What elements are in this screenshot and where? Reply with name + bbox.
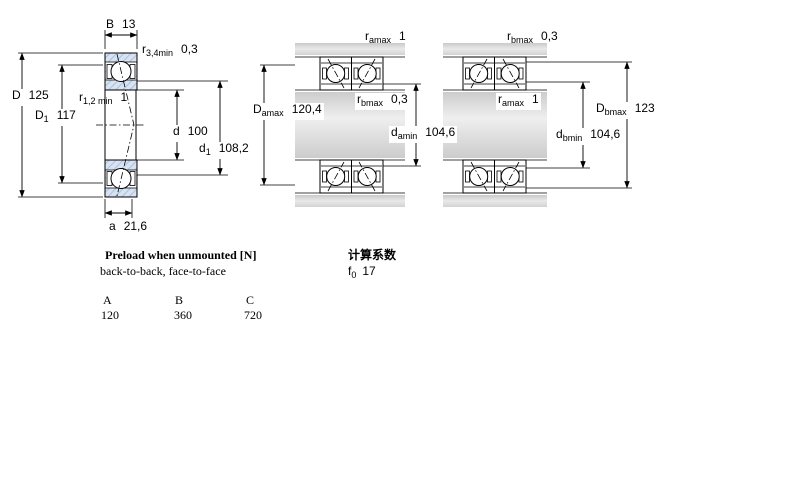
preload-column-C: C xyxy=(246,293,254,307)
dim-label-a: a21,6 xyxy=(109,220,147,237)
dim-label-ramax-f2f: ramax1 xyxy=(496,93,541,110)
dim-label-D: D125 xyxy=(10,89,51,106)
dim-label-dbmin: dbmin104,6 xyxy=(554,128,622,145)
bearing-datasheet-drawing: B13 r3,4min0,3 D125 D1117 r1,2 min1 d100… xyxy=(0,0,800,500)
preload-column-A: A xyxy=(103,293,112,307)
dim-label-Damax: Damax120,4 xyxy=(251,103,324,120)
calculation-factors-title: 计算系数 xyxy=(348,248,396,262)
dim-label-B: B13 xyxy=(106,18,135,35)
factor-f0: f017 xyxy=(348,265,376,282)
preload-title: Preload when unmounted [N] xyxy=(105,248,256,262)
dim-label-r12min: r1,2 min1 xyxy=(79,91,127,108)
dim-label-D1: D1117 xyxy=(33,109,78,126)
dim-label-ramax-b2b: ramax1 xyxy=(365,30,406,47)
face-to-face-arrangement xyxy=(443,43,632,207)
dim-label-rbmax-b2b: rbmax0,3 xyxy=(355,93,410,110)
dim-label-damin: damin104,6 xyxy=(389,126,457,143)
preload-value-C: 720 xyxy=(244,308,262,322)
preload-column-B: B xyxy=(175,293,183,307)
dim-label-d: d100 xyxy=(171,125,210,142)
preload-value-A: 120 xyxy=(101,308,119,322)
dim-label-d1: d1108,2 xyxy=(197,142,251,159)
preload-value-B: 360 xyxy=(174,308,192,322)
dim-label-Dbmax: Dbmax123 xyxy=(594,102,657,119)
dim-label-r34min: r3,4min0,3 xyxy=(142,43,198,60)
preload-subtitle: back-to-back, face-to-face xyxy=(100,264,226,278)
dim-label-rbmax-f2f: rbmax0,3 xyxy=(507,30,558,47)
